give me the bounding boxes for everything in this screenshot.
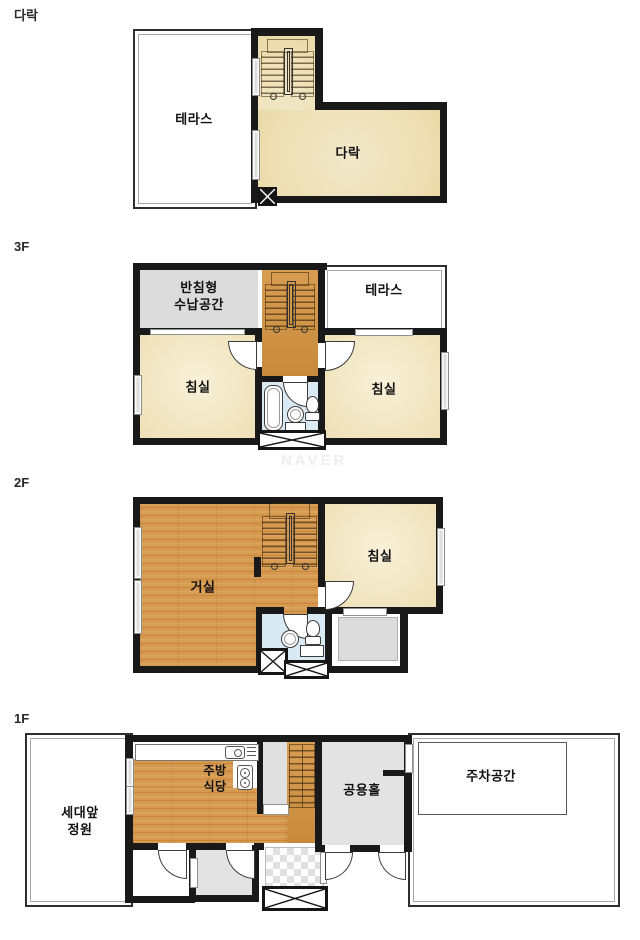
room-label-kitchen: 주방 식당 — [203, 763, 226, 794]
stove-icon — [237, 765, 253, 790]
wall — [189, 895, 259, 902]
window — [126, 786, 134, 815]
wall — [350, 845, 380, 852]
burner-icon — [240, 768, 250, 778]
wall — [404, 845, 412, 852]
main-entrance-door — [405, 744, 413, 773]
wall — [125, 843, 158, 850]
room-label-common-hall: 공용홀 — [343, 783, 380, 800]
room-label-garden: 세대앞 정원 — [61, 805, 98, 839]
f1-transparent-patch — [265, 847, 324, 888]
kitchen-sink — [225, 746, 245, 759]
floor-label-1f: 1F — [14, 711, 29, 726]
burner-icon — [240, 778, 250, 788]
wall — [125, 735, 412, 742]
door-hall-left — [325, 852, 353, 880]
floorplan-canvas: 다락 테라스 다락 3F — [0, 0, 640, 940]
f1-entry-closet — [263, 742, 287, 804]
entry-sliding-door — [263, 804, 289, 815]
plan-1f: 1F — [0, 0, 640, 940]
window — [126, 758, 134, 787]
shaft-box-icon — [262, 886, 328, 911]
wall — [315, 740, 322, 852]
grill-icon — [247, 747, 256, 757]
room-label-parking: 주차공간 — [466, 769, 516, 786]
door-garden — [158, 850, 187, 879]
staircase-1f — [289, 744, 315, 808]
door-hall-right — [378, 852, 406, 880]
wall — [125, 896, 195, 903]
wall — [315, 845, 325, 852]
vestibule-door — [190, 858, 198, 888]
